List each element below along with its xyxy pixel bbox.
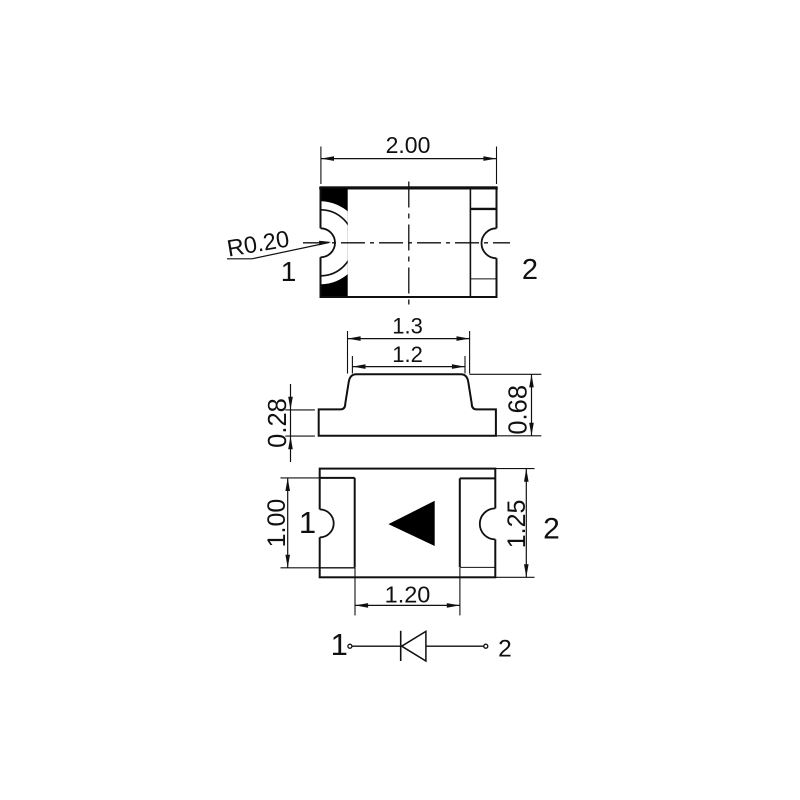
svg-text:1.2: 1.2 <box>392 342 423 367</box>
svg-text:1: 1 <box>299 505 316 540</box>
svg-text:2: 2 <box>498 636 512 663</box>
svg-text:1.3: 1.3 <box>392 314 423 339</box>
svg-text:1.20: 1.20 <box>385 582 431 608</box>
svg-text:2.00: 2.00 <box>386 132 431 158</box>
svg-text:2: 2 <box>522 254 538 286</box>
svg-text:0.28: 0.28 <box>264 398 292 448</box>
svg-text:1.00: 1.00 <box>263 499 291 548</box>
svg-text:1.25: 1.25 <box>503 500 531 549</box>
svg-text:0.68: 0.68 <box>505 385 533 435</box>
svg-text:1: 1 <box>281 256 297 287</box>
svg-text:2: 2 <box>543 512 560 545</box>
svg-text:1: 1 <box>331 627 348 662</box>
